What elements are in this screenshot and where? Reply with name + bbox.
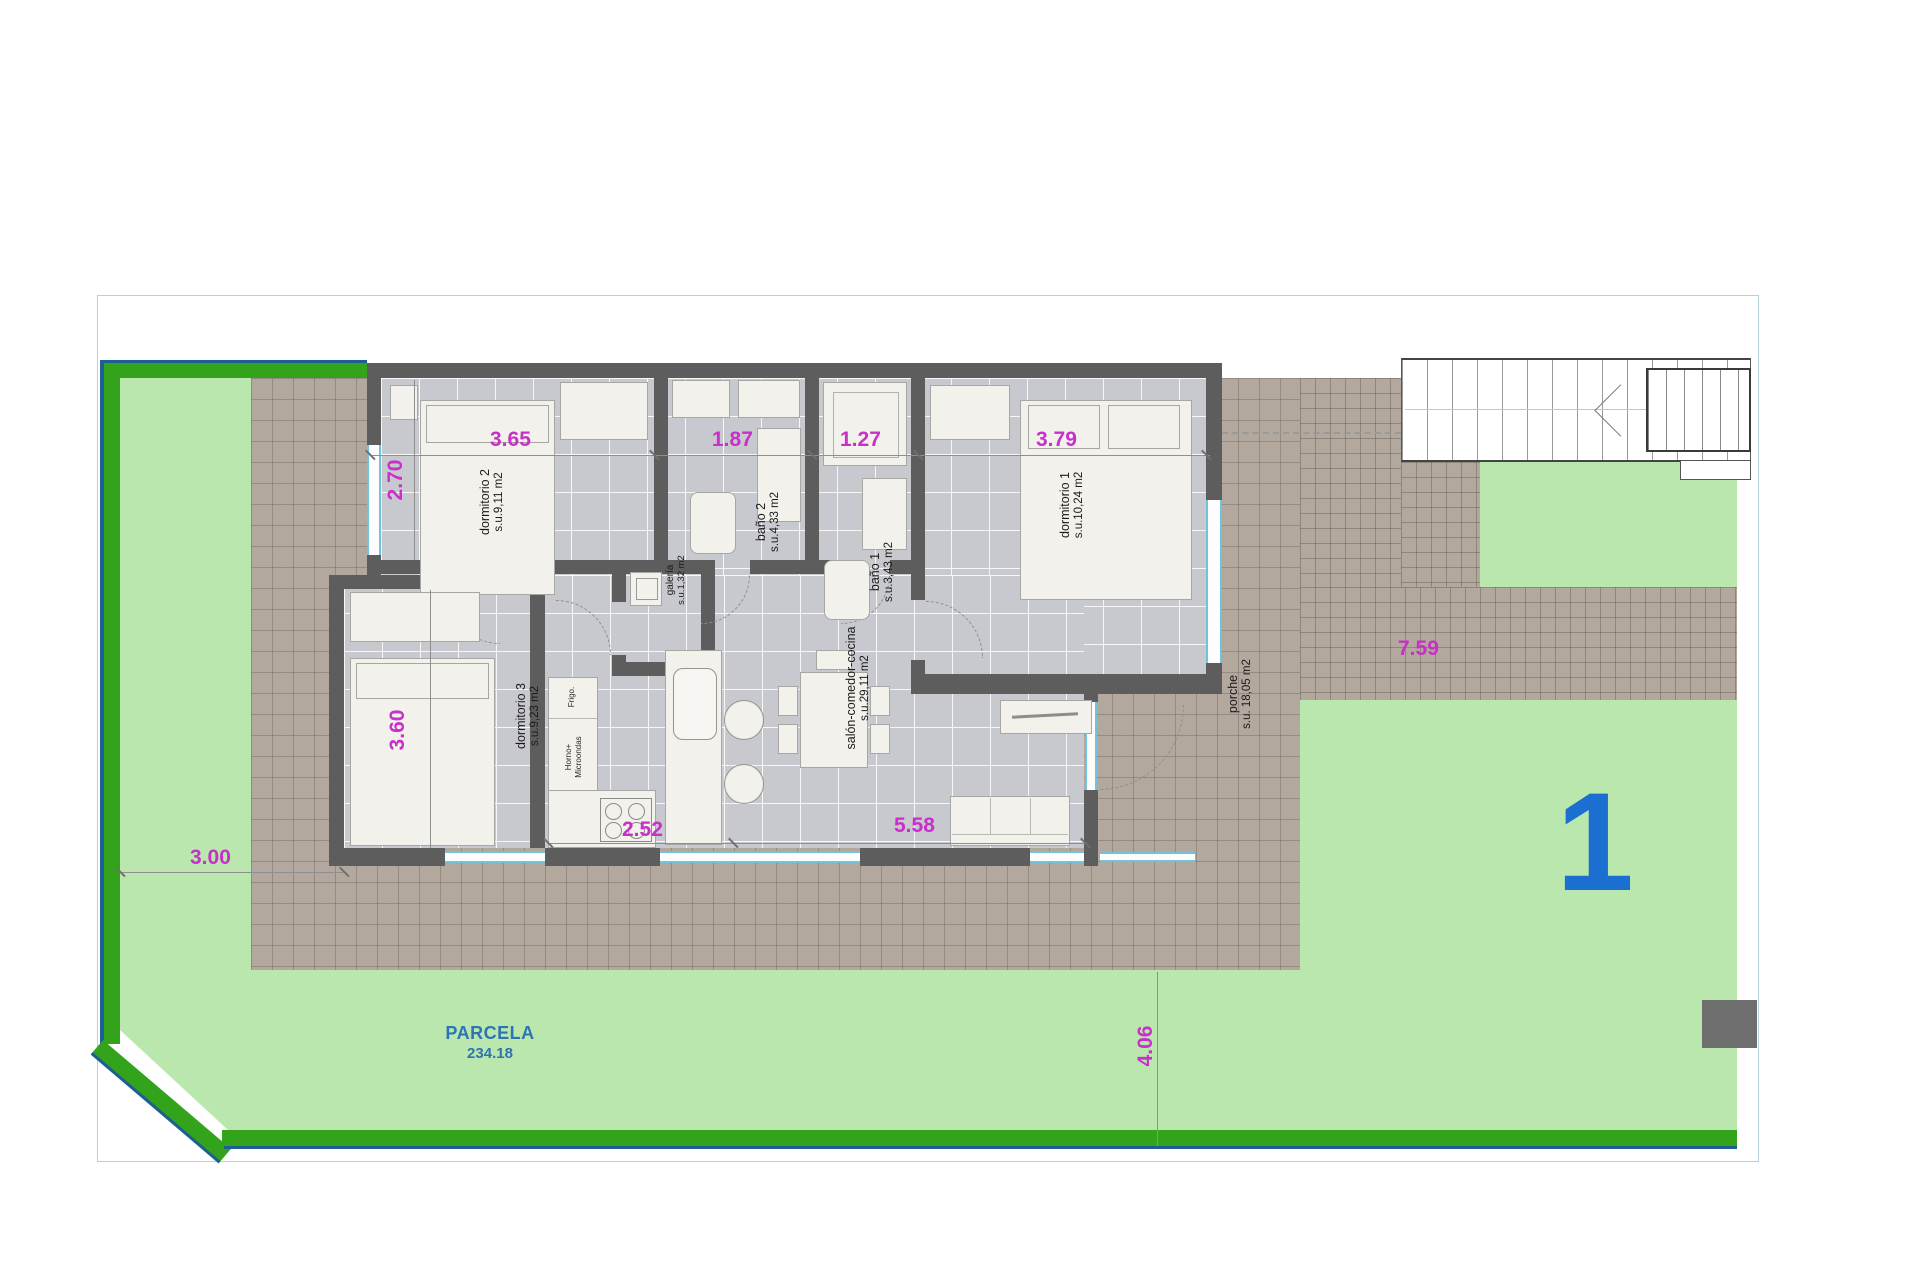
fridge-text: Frigo. (567, 687, 577, 707)
wardrobe-dorm2 (560, 382, 648, 440)
washer-drum (636, 578, 658, 600)
wall-west-lower (329, 575, 344, 866)
wall-dorm2-south-b (545, 560, 612, 574)
window-south-dorm3 (445, 851, 545, 863)
room-name: galería (665, 565, 677, 596)
hedge-top (104, 363, 367, 378)
site-plan-canvas: 3.65 1.87 1.27 3.79 2.52 5.58 3.00 7.59 … (0, 0, 1920, 1280)
wall-dorm1-south (925, 674, 1222, 694)
pillow-dorm3 (356, 663, 489, 699)
window-south-salon (1030, 851, 1090, 863)
sofa (950, 796, 1070, 846)
sofa-seat-line-2 (1030, 798, 1031, 834)
room-name: salón-comedor-cocina (844, 627, 859, 750)
dashed-roof-line (1222, 432, 1401, 434)
wall-bano1-dorm1-a (911, 378, 925, 600)
unit-number: 1 (1555, 772, 1635, 912)
room-area: s.u.3,43 m2 (883, 542, 897, 602)
parcel-name: PARCELA (400, 1022, 580, 1045)
label-dormitorio2: dormitorio 2 s.u.9,11 m2 (475, 427, 509, 577)
stairs-upper-flight (1646, 368, 1751, 452)
parcel-label: PARCELA 234.18 (400, 1022, 580, 1063)
stool-2 (724, 764, 764, 804)
dimline-300 (120, 872, 344, 873)
label-galeria: galería s.u.1,32 m2 (661, 515, 691, 645)
wall-bano1-dorm1-b (911, 660, 925, 694)
wall-north (367, 363, 1222, 378)
room-area: s.u.1,32 m2 (676, 555, 687, 605)
oven-text-1: Horno+ (564, 744, 574, 770)
dimline-360 (430, 590, 431, 848)
terrace-upper-right (1300, 378, 1401, 587)
burner-3 (605, 822, 622, 839)
wall-south-c (860, 848, 1030, 866)
pillow-dorm1-b (1108, 405, 1180, 449)
label-porche: porche s.u. 18,05 m2 (1223, 619, 1257, 769)
room-area: s.u.10,24 m2 (1073, 472, 1087, 538)
utility-box (1702, 1000, 1757, 1048)
wall-galeria-left-a (612, 574, 626, 602)
dining-chair-l2 (778, 724, 798, 754)
dimension-bano2-width: 1.87 (712, 428, 753, 452)
toilet-bano2 (690, 492, 736, 554)
burner-1 (605, 803, 622, 820)
room-area: s.u.9,23 m2 (529, 686, 543, 746)
dimline-270 (414, 380, 415, 560)
stool-1 (724, 700, 764, 740)
walkway-paving (1300, 587, 1737, 700)
dimension-dorm2-height: 2.70 (379, 420, 413, 540)
boundary-line-bottom (224, 1146, 1737, 1149)
label-dormitorio3: dormitorio 3 s.u.9,23 m2 (511, 641, 545, 791)
room-area: s.u.9,11 m2 (493, 472, 507, 531)
label-salon: salón-comedor-cocina s.u.29,11 m2 (841, 598, 875, 778)
room-area: s.u. 18,05 m2 (1241, 659, 1255, 729)
label-oven: Horno+ Microondas (561, 717, 587, 797)
room-name: porche (1226, 675, 1241, 713)
sofa-seat-line-1 (990, 798, 991, 834)
room-name: dormitorio 1 (1058, 472, 1073, 538)
island-sink (673, 668, 717, 740)
room-name: dormitorio 3 (514, 683, 529, 749)
dimension-salon-width: 5.58 (894, 814, 935, 838)
window-south-kitchen (660, 851, 860, 863)
hedge-left (104, 363, 120, 1044)
dimension-right-setback: 4.06 (1129, 986, 1163, 1106)
wall-salon-east-b (1084, 790, 1098, 848)
wall-south-corner (1084, 848, 1098, 866)
room-name: dormitorio 2 (478, 469, 493, 535)
label-bano2: baño 2 s.u.4,33 m2 (751, 447, 785, 597)
hedge-bottom (222, 1130, 1737, 1146)
wall-south-b (545, 848, 660, 866)
wall-east-dorm1-a (1206, 363, 1222, 500)
room-area: s.u.29,11 m2 (859, 655, 873, 721)
room-name: baño 1 (868, 553, 883, 591)
sofa-back-line (952, 834, 1068, 835)
wall-south-a (329, 848, 445, 866)
wall-west-upper-b (367, 555, 381, 577)
dimension-kitchen-width: 2.52 (622, 818, 663, 842)
dimension-left-setback: 3.00 (190, 846, 231, 870)
room-name: baño 2 (754, 503, 769, 541)
wardrobe-dorm3 (350, 592, 480, 642)
dimline-bottom (548, 843, 1085, 844)
terrace-below-stairs (1401, 462, 1480, 587)
window-dorm1-east (1206, 500, 1222, 663)
parcel-area: 234.18 (400, 1045, 580, 1064)
wall-bano2-bano1 (805, 378, 819, 574)
dimension-walkway-length: 7.59 (1398, 637, 1439, 661)
shelf-bano2 (672, 380, 730, 418)
label-dormitorio1: dormitorio 1 s.u.10,24 m2 (1055, 430, 1089, 580)
oven-text-2: Microondas (574, 736, 584, 777)
dining-chair-l1 (778, 686, 798, 716)
dimension-bano1-width: 1.27 (840, 428, 881, 452)
porch-railing (1100, 852, 1195, 862)
stairs-landing (1680, 460, 1751, 480)
closet-dorm1 (930, 385, 1010, 440)
cabinet-bano2 (738, 380, 800, 418)
dimension-dorm3-height: 3.60 (381, 670, 415, 790)
room-area: s.u.4,33 m2 (769, 492, 783, 552)
